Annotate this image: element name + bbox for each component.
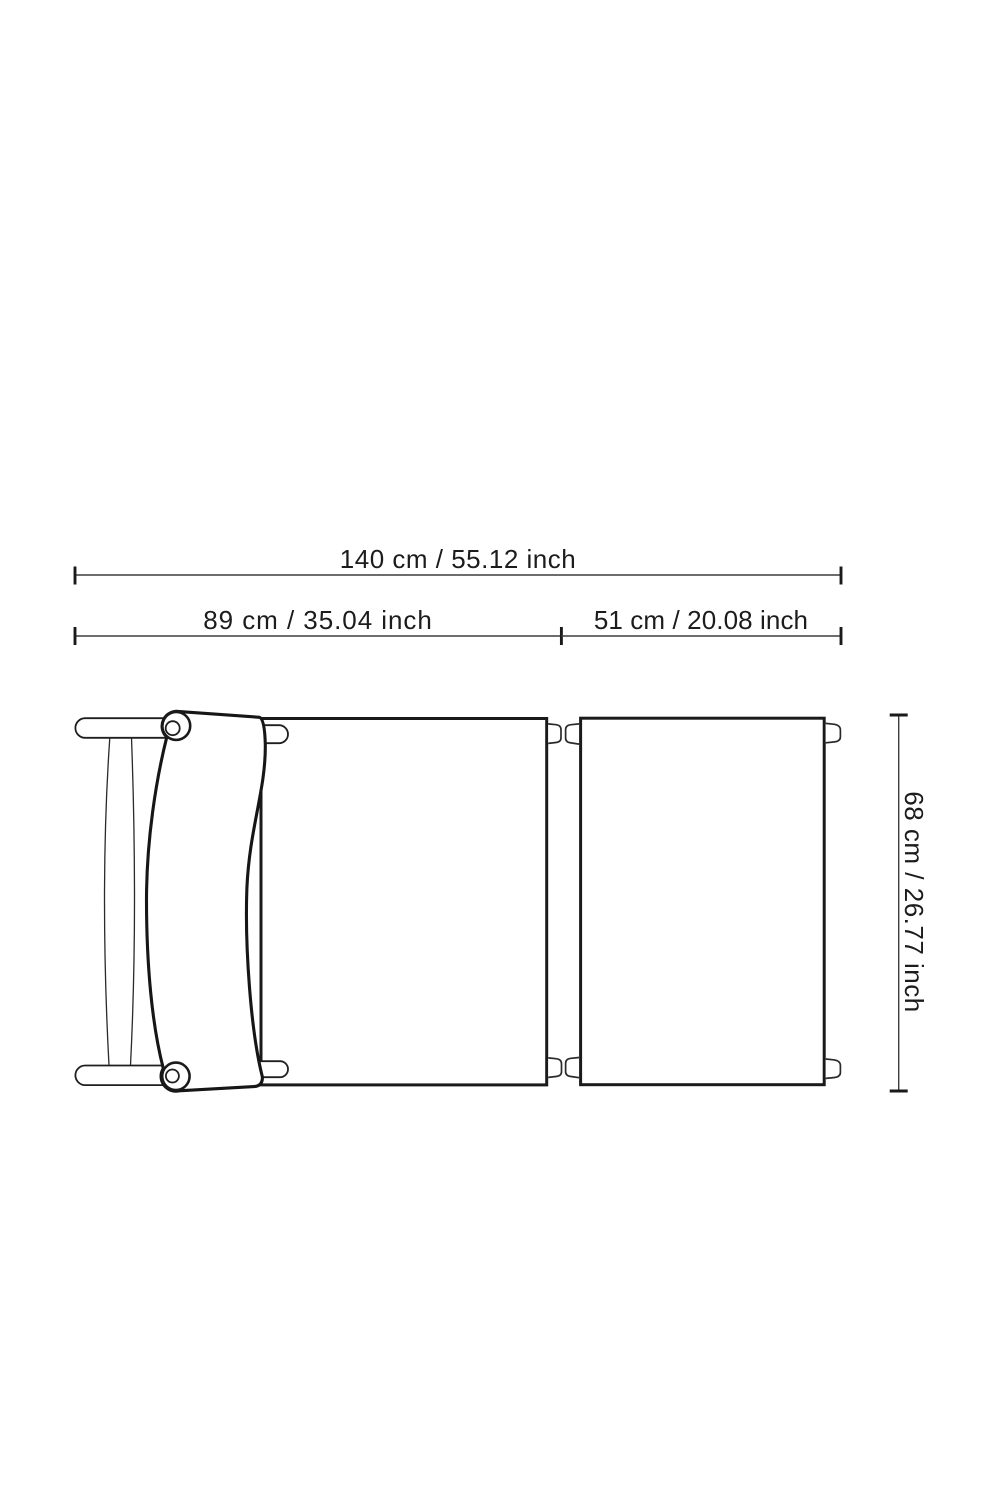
svg-text:89 cm / 35.04 inch: 89 cm / 35.04 inch <box>203 605 433 635</box>
svg-text:51 cm / 20.08 inch: 51 cm / 20.08 inch <box>594 605 808 635</box>
svg-text:140 cm / 55.12 inch: 140 cm / 55.12 inch <box>340 544 576 574</box>
svg-text:68 cm / 26.77 inch: 68 cm / 26.77 inch <box>899 791 929 1012</box>
